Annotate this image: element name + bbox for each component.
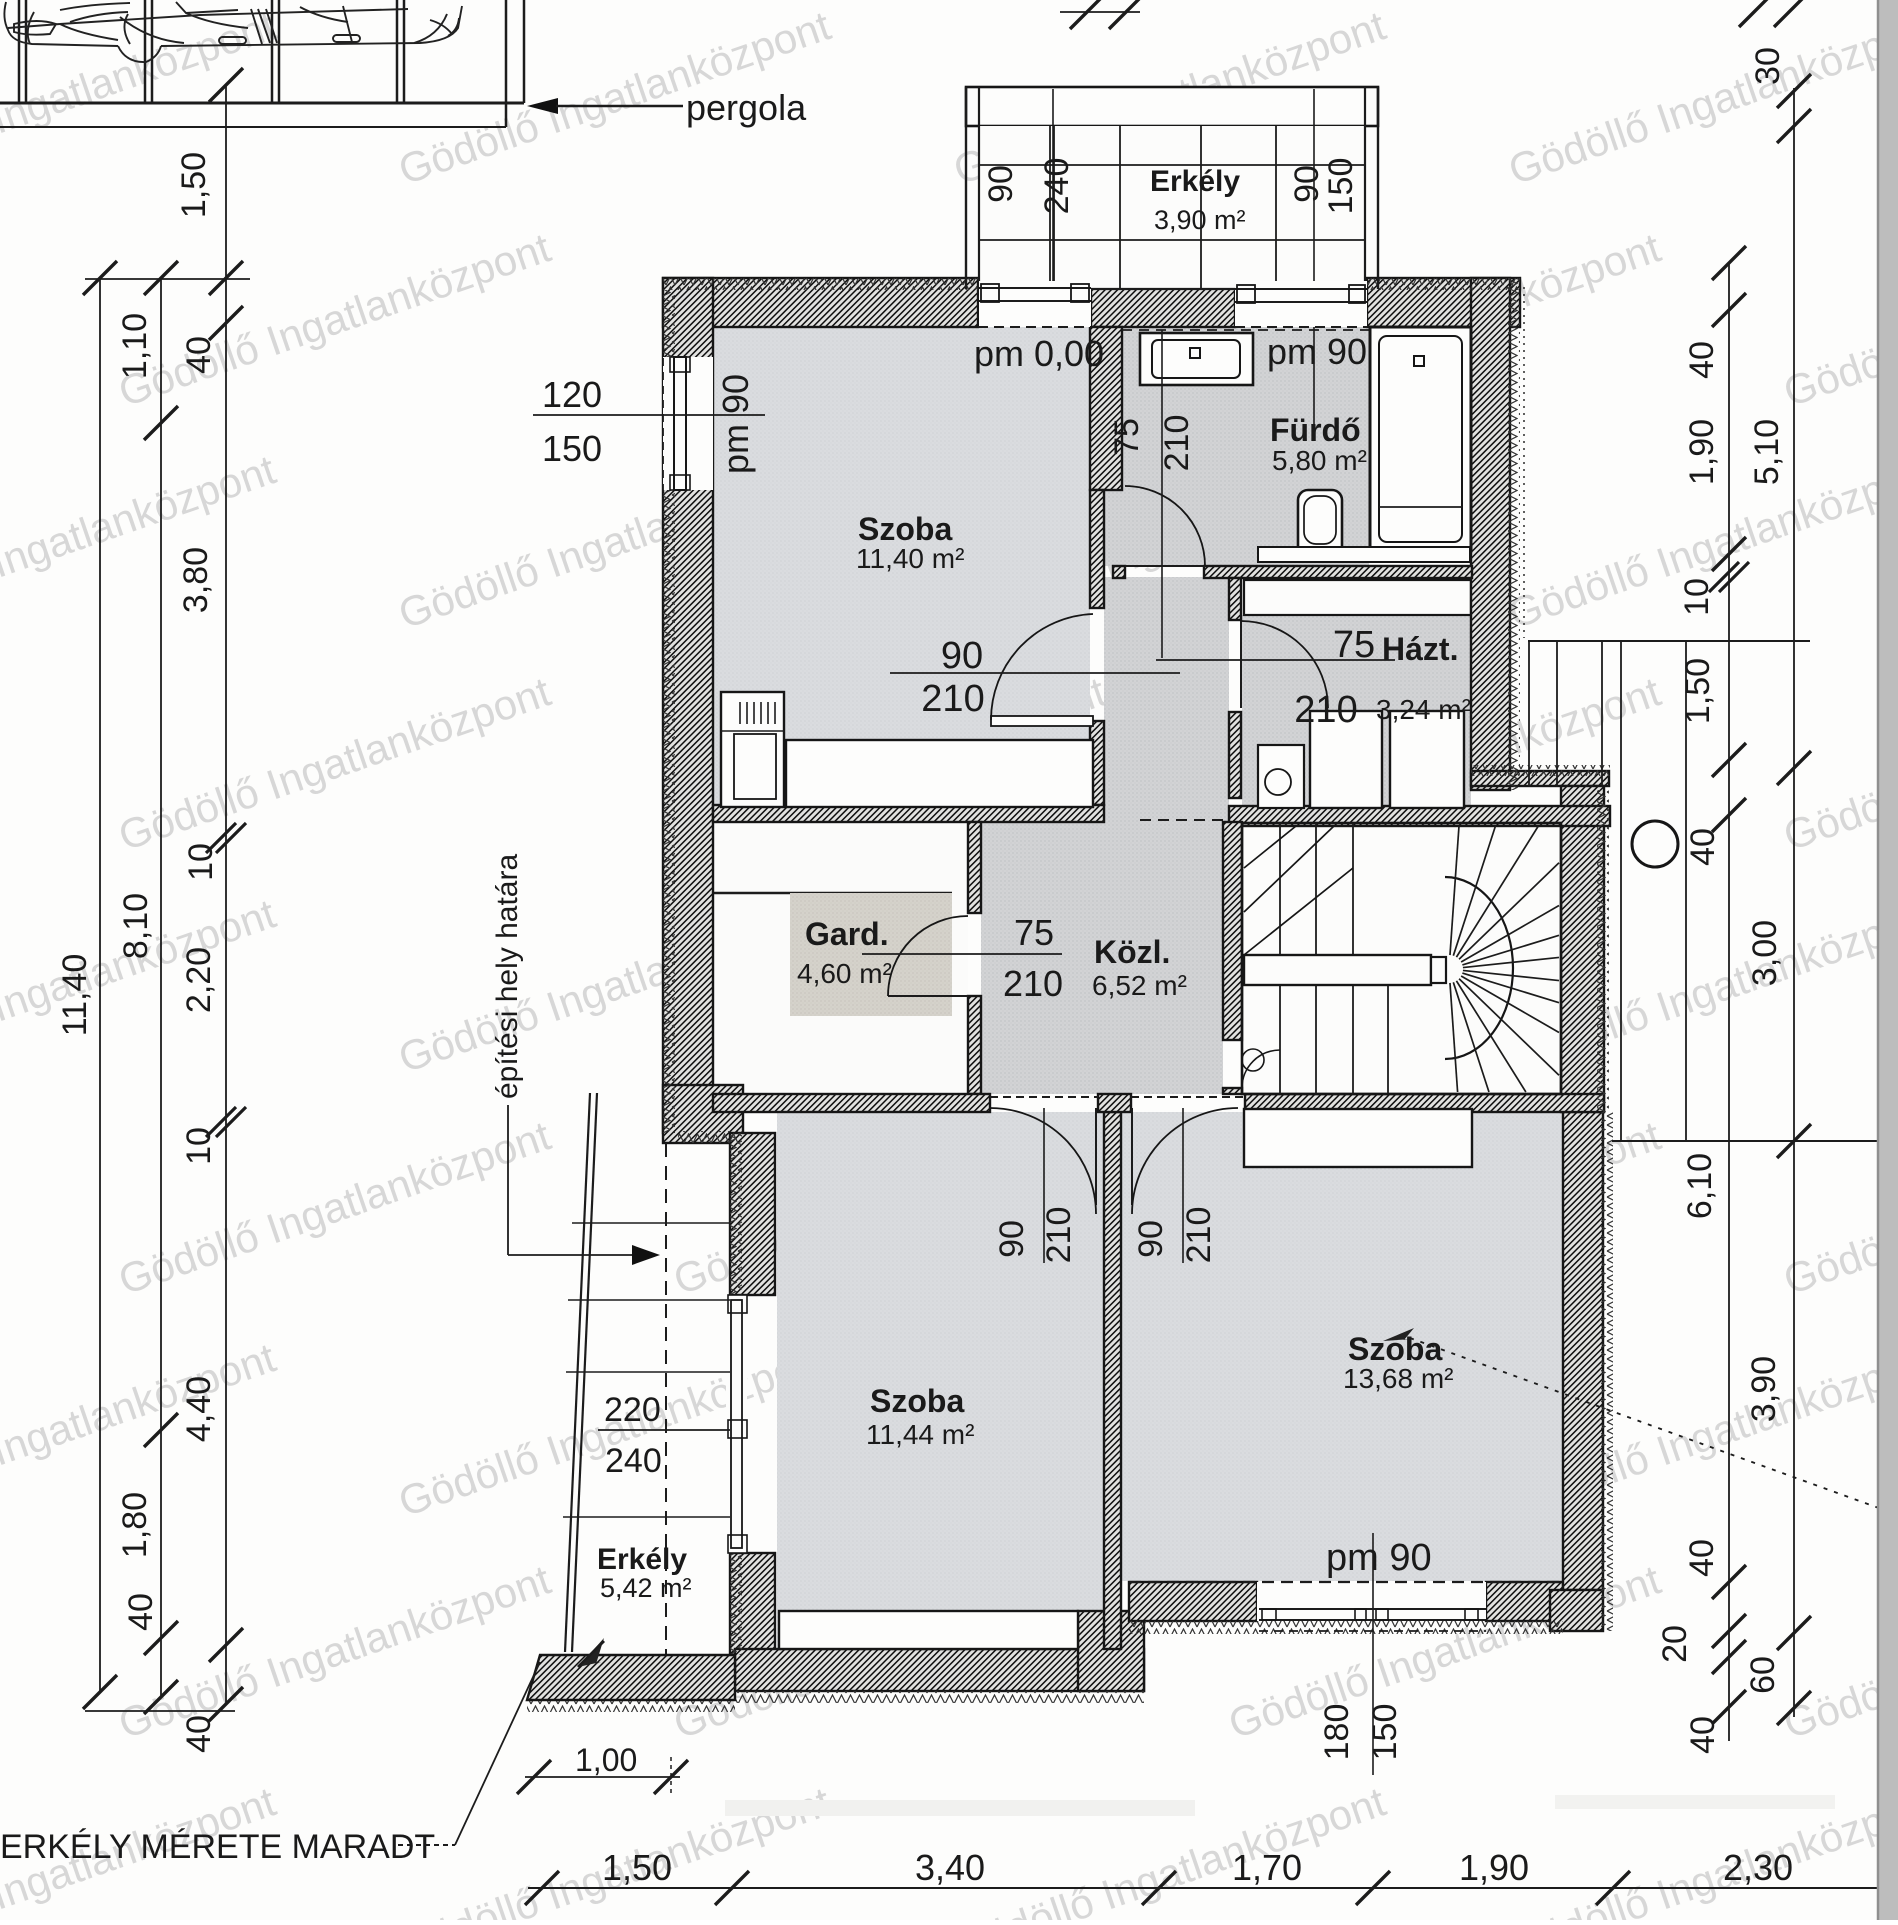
- svg-text:210: 210: [1180, 1207, 1218, 1264]
- svg-text:60: 60: [1744, 1656, 1782, 1694]
- svg-text:40: 40: [1684, 828, 1722, 866]
- svg-text:40: 40: [1683, 1539, 1721, 1577]
- svg-text:210: 210: [1003, 963, 1063, 1004]
- svg-text:Szoba: Szoba: [1348, 1331, 1442, 1367]
- svg-text:150: 150: [1322, 158, 1360, 215]
- svg-text:150: 150: [542, 428, 602, 469]
- svg-text:pergola: pergola: [686, 87, 807, 128]
- svg-text:1,50: 1,50: [175, 152, 213, 218]
- svg-text:Erkély: Erkély: [1150, 165, 1240, 198]
- svg-text:75: 75: [1108, 418, 1146, 456]
- svg-text:40: 40: [180, 1715, 218, 1753]
- svg-text:1,90: 1,90: [1459, 1847, 1529, 1888]
- svg-text:120: 120: [542, 374, 602, 415]
- svg-text:40: 40: [180, 336, 218, 374]
- svg-text:11,40 m²: 11,40 m²: [856, 543, 964, 574]
- svg-text:40: 40: [1683, 341, 1721, 379]
- svg-text:Erkély: Erkély: [597, 1543, 687, 1576]
- svg-text:90: 90: [1288, 165, 1326, 203]
- svg-text:1,70: 1,70: [1232, 1847, 1302, 1888]
- svg-text:8,10: 8,10: [117, 893, 155, 959]
- svg-text:5,80 m²: 5,80 m²: [1272, 445, 1367, 476]
- svg-text:6,52 m²: 6,52 m²: [1092, 970, 1187, 1001]
- svg-text:11,44 m²: 11,44 m²: [866, 1419, 974, 1450]
- svg-text:3,90: 3,90: [1745, 1356, 1783, 1422]
- svg-text:1,50: 1,50: [1679, 658, 1717, 724]
- svg-text:4,40: 4,40: [180, 1376, 218, 1442]
- svg-text:1,90: 1,90: [1683, 419, 1721, 485]
- svg-text:90: 90: [993, 1220, 1031, 1258]
- svg-text:90: 90: [982, 165, 1020, 203]
- svg-text:240: 240: [1038, 158, 1076, 215]
- svg-text:10: 10: [1678, 578, 1716, 616]
- svg-text:10: 10: [180, 1127, 218, 1165]
- svg-text:150: 150: [1366, 1704, 1404, 1761]
- svg-text:Közl.: Közl.: [1094, 934, 1170, 970]
- svg-text:180: 180: [1318, 1704, 1356, 1761]
- svg-text:1,00: 1,00: [575, 1742, 637, 1778]
- svg-text:5,42 m²: 5,42 m²: [600, 1573, 692, 1603]
- svg-text:2,20: 2,20: [180, 947, 218, 1013]
- svg-text:13,68 m²: 13,68 m²: [1343, 1363, 1454, 1394]
- svg-text:Fürdő: Fürdő: [1270, 412, 1361, 448]
- svg-text:90: 90: [1132, 1220, 1170, 1258]
- svg-text:3,00: 3,00: [1746, 920, 1784, 986]
- svg-text:220: 220: [604, 1391, 661, 1429]
- svg-text:210: 210: [921, 678, 984, 720]
- svg-text:10: 10: [182, 843, 220, 881]
- svg-text:3,80: 3,80: [177, 547, 215, 613]
- svg-text:11,40: 11,40: [56, 954, 94, 1037]
- svg-text:Gard.: Gard.: [805, 916, 889, 952]
- svg-text:Szoba: Szoba: [870, 1383, 964, 1419]
- svg-text:Házt.: Házt.: [1382, 631, 1458, 667]
- svg-text:90: 90: [941, 635, 983, 677]
- svg-text:30: 30: [1749, 47, 1787, 85]
- svg-text:210: 210: [1040, 1207, 1078, 1264]
- svg-text:1,10: 1,10: [116, 313, 154, 379]
- svg-text:pm 90: pm 90: [715, 374, 756, 474]
- svg-text:ERKÉLY MÉRETE MARADT: ERKÉLY MÉRETE MARADT: [0, 1828, 435, 1866]
- svg-text:6,10: 6,10: [1681, 1153, 1719, 1219]
- svg-text:3,24 m²: 3,24 m²: [1376, 694, 1471, 725]
- svg-text:20: 20: [1656, 1625, 1694, 1663]
- svg-text:1,50: 1,50: [602, 1847, 672, 1888]
- svg-text:210: 210: [1158, 415, 1196, 472]
- svg-text:240: 240: [605, 1442, 662, 1480]
- svg-text:40: 40: [1684, 1716, 1722, 1754]
- svg-text:75: 75: [1014, 912, 1054, 953]
- svg-text:pm 90: pm 90: [1267, 331, 1367, 372]
- svg-text:4,60 m²: 4,60 m²: [797, 958, 892, 989]
- svg-text:210: 210: [1294, 689, 1357, 731]
- svg-text:pm 0,00: pm 0,00: [974, 333, 1104, 374]
- svg-text:építési hely határa: építési hely határa: [491, 854, 524, 1099]
- svg-text:3,40: 3,40: [915, 1847, 985, 1888]
- svg-text:Szoba: Szoba: [858, 511, 952, 547]
- svg-text:pm 90: pm 90: [1326, 1537, 1432, 1579]
- svg-text:2,30: 2,30: [1723, 1847, 1793, 1888]
- svg-text:40: 40: [122, 1593, 160, 1631]
- svg-text:5,10: 5,10: [1748, 419, 1786, 485]
- svg-text:1,80: 1,80: [116, 1492, 154, 1558]
- svg-text:3,90 m²: 3,90 m²: [1154, 205, 1246, 235]
